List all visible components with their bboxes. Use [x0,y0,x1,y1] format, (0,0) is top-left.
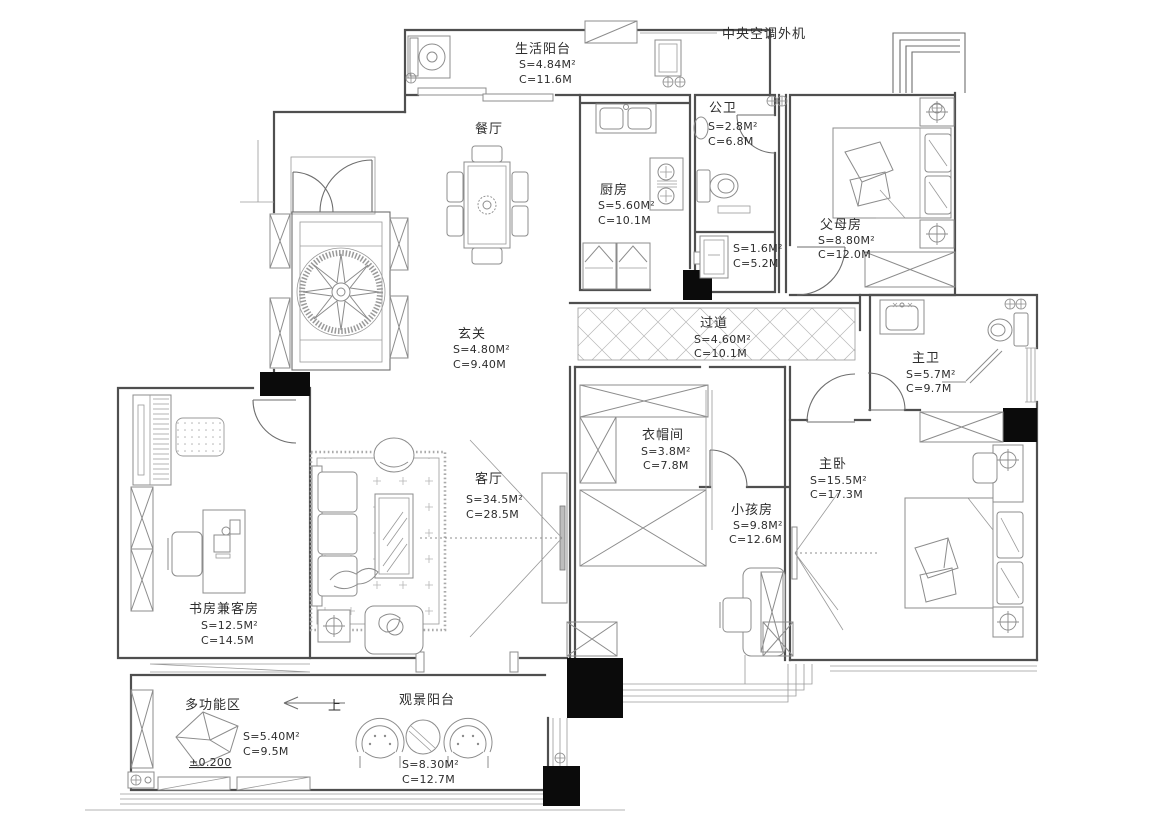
living-room-furniture [311,438,567,654]
label-hallway-c: C=10.1M [694,347,747,360]
label-life-balcony-s: S=4.84M² [519,58,576,71]
label-dining: 餐厅 [475,121,503,137]
master-bath-door [868,373,905,410]
study-door [253,400,296,443]
label-hallway: 过道 [700,316,728,331]
entry-double-door [291,157,375,214]
floor-plan-drawing: 生活阳台 S=4.84M² C=11.6M 中央空调外机 餐厅 厨房 S=5.6… [0,0,1159,819]
kitchen-fixtures [583,104,683,289]
master-bedroom-door [807,374,855,422]
label-up: 上 [328,699,342,714]
label-cloakroom-s: S=3.8M² [641,445,691,458]
label-master-bedroom-c: C=17.3M [810,488,863,501]
label-view-balcony: 观景阳台 [399,693,455,708]
ac-outdoor-unit [585,21,717,43]
compass-medallion [297,248,385,336]
label-parents-room: 父母房 [820,217,862,233]
label-hallway-s: S=4.60M² [694,333,751,346]
label-storage-c: C=5.2M [733,257,779,270]
label-parents-room-s: S=8.80M² [818,234,875,247]
label-view-balcony-s: S=8.30M² [402,758,459,771]
label-life-balcony-c: C=11.6M [519,73,572,86]
label-master-bedroom-s: S=15.5M² [810,474,867,487]
balcony-sliding-door [418,88,553,101]
label-study-s: S=12.5M² [201,619,258,632]
kids-room-furniture [567,568,793,656]
label-kitchen-s: S=5.60M² [598,199,655,212]
label-kitchen: 厨房 [600,182,628,198]
label-multi-zone-c: C=9.5M [243,745,289,758]
label-living-room: 客厅 [475,471,503,487]
label-view-balcony-c: C=12.7M [402,773,455,786]
label-multi-zone-s: S=5.40M² [243,730,300,743]
kids-room-door [710,450,747,487]
label-living-room-c: C=28.5M [466,508,519,521]
label-foyer-c: C=9.40M [453,358,506,371]
label-living-room-s: S=34.5M² [466,493,523,506]
label-parents-room-c: C=12.0M [818,248,871,261]
label-study: 书房兼客房 [189,601,259,617]
label-public-bath: 公卫 [709,101,737,116]
label-floor-level: ±0.200 [189,756,232,769]
entry-porch [270,212,408,370]
label-foyer: 玄关 [458,327,486,342]
cloakroom-cabinets [580,385,712,566]
label-study-c: C=14.5M [201,634,254,647]
label-cloakroom: 衣帽间 [642,427,684,443]
label-master-bath-c: C=9.7M [906,382,952,395]
dining-table-set [447,146,528,264]
label-multi-zone: 多功能区 [185,697,241,713]
label-kitchen-c: C=10.1M [598,214,651,227]
label-foyer-s: S=4.80M² [453,343,510,356]
label-kids-room: 小孩房 [731,502,773,518]
label-cloakroom-c: C=7.8M [643,459,689,472]
label-kids-room-s: S=9.8M² [733,519,783,532]
label-life-balcony: 生活阳台 [515,42,571,57]
floor-plan-page: 生活阳台 S=4.84M² C=11.6M 中央空调外机 餐厅 厨房 S=5.6… [0,0,1159,819]
label-public-bath-c: C=6.8M [708,135,754,148]
label-storage-s: S=1.6M² [733,242,783,255]
label-master-bath: 主卫 [912,351,940,366]
label-master-bedroom: 主卧 [819,457,847,472]
label-kids-room-c: C=12.6M [729,533,782,546]
label-public-bath-s: S=2.8M² [708,120,758,133]
label-master-bath-s: S=5.7M² [906,368,956,381]
study-furniture [131,395,245,611]
label-ac-unit: 中央空调外机 [722,27,806,42]
